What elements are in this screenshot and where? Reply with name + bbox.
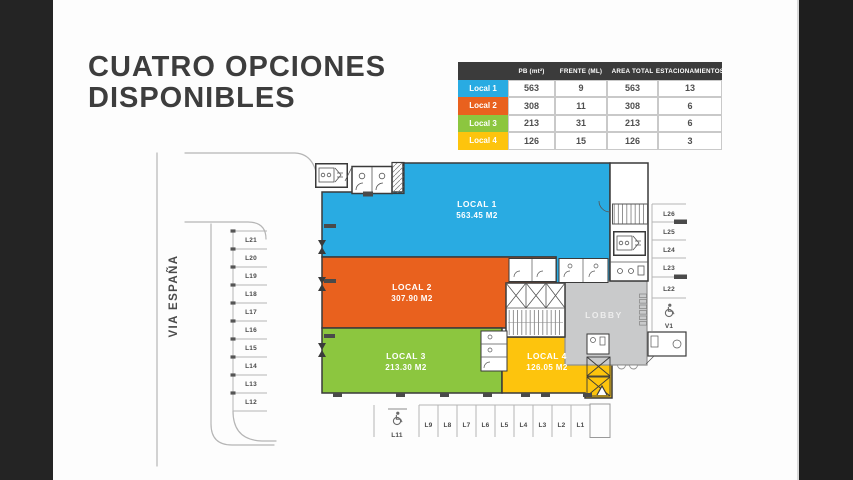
parking-column-left: L21 L20 L19 L18 L17 L16 L15 L14 L13 L12 bbox=[231, 229, 268, 411]
floor-plan: L21 L20 L19 L18 L17 L16 L15 L14 L13 L12 bbox=[0, 0, 853, 480]
wheelchair-icon bbox=[665, 304, 674, 317]
stall-label-accessible: V1 bbox=[665, 323, 674, 330]
stall-label-accessible: L11 bbox=[391, 432, 403, 439]
parking-row-bottom: L11 L9 L8 L7 L6 L5 L4 L3 L2 L1 bbox=[374, 404, 610, 439]
stall-label: L8 bbox=[444, 422, 452, 429]
stall-label: L25 bbox=[663, 229, 675, 236]
stall-label: L9 bbox=[425, 422, 433, 429]
local-4-area-label: 126.05 M2 bbox=[526, 363, 568, 372]
stall-label: L24 bbox=[663, 247, 675, 254]
local-1-name: LOCAL 1 bbox=[457, 199, 497, 209]
local-2-name: LOCAL 2 bbox=[392, 282, 432, 292]
stall-label: L22 bbox=[663, 286, 675, 293]
stall-label: L1 bbox=[577, 422, 585, 429]
stall-label: L21 bbox=[245, 237, 257, 244]
wheelchair-icon bbox=[393, 412, 402, 425]
local-1-area-label: 563.45 M2 bbox=[456, 211, 498, 220]
escalator-icon bbox=[614, 232, 646, 256]
stall-label: L14 bbox=[245, 363, 257, 370]
stall-label: L5 bbox=[501, 422, 509, 429]
stall-label: L4 bbox=[520, 422, 528, 429]
slide: CUATRO OPCIONES DISPONIBLES PB (mt²) FRE… bbox=[0, 0, 853, 480]
escalator-icon bbox=[316, 164, 348, 188]
stall-label: L20 bbox=[245, 255, 257, 262]
stall-label: L2 bbox=[558, 422, 566, 429]
stall-label: L23 bbox=[663, 265, 675, 272]
stall-label: L6 bbox=[482, 422, 490, 429]
stall-label: L16 bbox=[245, 327, 257, 334]
local-4-name: LOCAL 4 bbox=[527, 351, 567, 361]
stall-label: L13 bbox=[245, 381, 257, 388]
lobby-label: LOBBY bbox=[585, 310, 623, 320]
stall-label: L7 bbox=[463, 422, 471, 429]
local-2-area-label: 307.90 M2 bbox=[391, 294, 433, 303]
parking-column-right: L26 L25 L24 L23 L22 V1 bbox=[652, 204, 687, 331]
street-curbs bbox=[157, 153, 318, 466]
stall-label: L26 bbox=[663, 211, 675, 218]
stall-label: L19 bbox=[245, 273, 257, 280]
side-room bbox=[646, 332, 686, 364]
stall-label: L3 bbox=[539, 422, 547, 429]
stall-label: L18 bbox=[245, 291, 257, 298]
stall-label: L12 bbox=[245, 399, 257, 406]
stall-label: L17 bbox=[245, 309, 257, 316]
stall-label: L15 bbox=[245, 345, 257, 352]
local-3-area-label: 213.30 M2 bbox=[385, 363, 427, 372]
local-3-name: LOCAL 3 bbox=[386, 351, 426, 361]
curb-tick bbox=[363, 192, 373, 197]
street-label: VIA ESPAÑA bbox=[167, 254, 180, 337]
